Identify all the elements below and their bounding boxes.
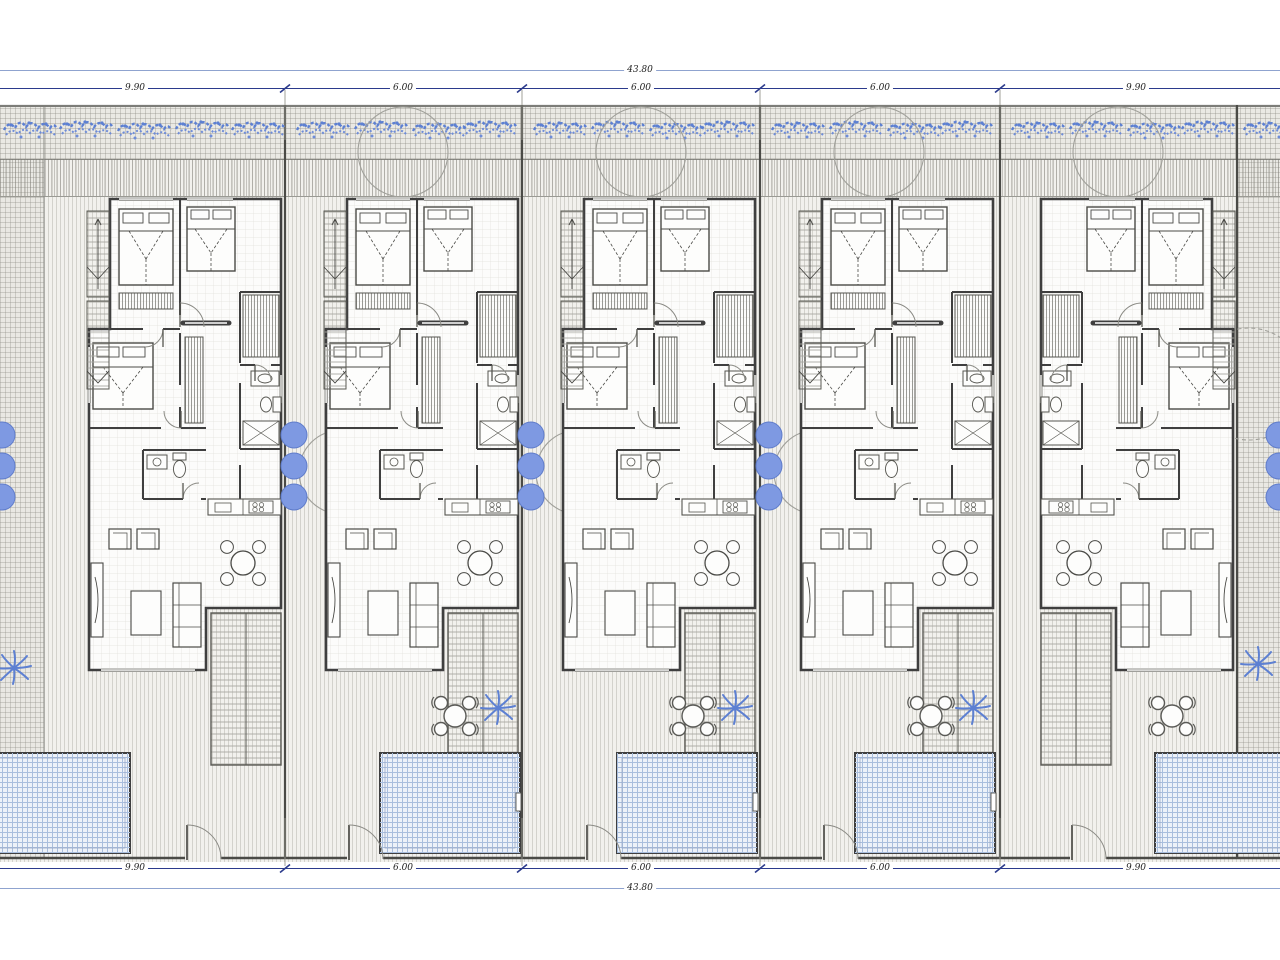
unit-plan-4 xyxy=(799,197,995,765)
unit-plan-1 xyxy=(87,197,283,765)
dimension-label: 9.90 xyxy=(122,863,148,873)
dimension-label: 9.90 xyxy=(1123,83,1149,93)
dimension-label: 6.00 xyxy=(867,83,893,93)
dimension-label: 6.00 xyxy=(628,83,654,93)
site-plan-canvas: 43.80 9.90 6.00 6.00 6.00 9.90 9.90 6.00… xyxy=(0,0,1280,960)
dimension-label: 43.80 xyxy=(624,65,656,75)
dimension-label: 6.00 xyxy=(867,863,893,873)
unit-plan-2 xyxy=(324,197,520,765)
plan-vector-overlay xyxy=(0,0,1280,960)
dimension-label: 9.90 xyxy=(122,83,148,93)
pool-icon xyxy=(0,753,1280,853)
dimension-label: 43.80 xyxy=(624,883,656,893)
dimension-label: 6.00 xyxy=(390,863,416,873)
street-hedge xyxy=(4,120,1280,139)
dimension-label: 6.00 xyxy=(390,83,416,93)
dimension-label: 6.00 xyxy=(628,863,654,873)
dimension-label: 9.90 xyxy=(1123,863,1149,873)
unit-plan-5 xyxy=(1039,197,1235,765)
unit-plan-3 xyxy=(561,197,757,765)
